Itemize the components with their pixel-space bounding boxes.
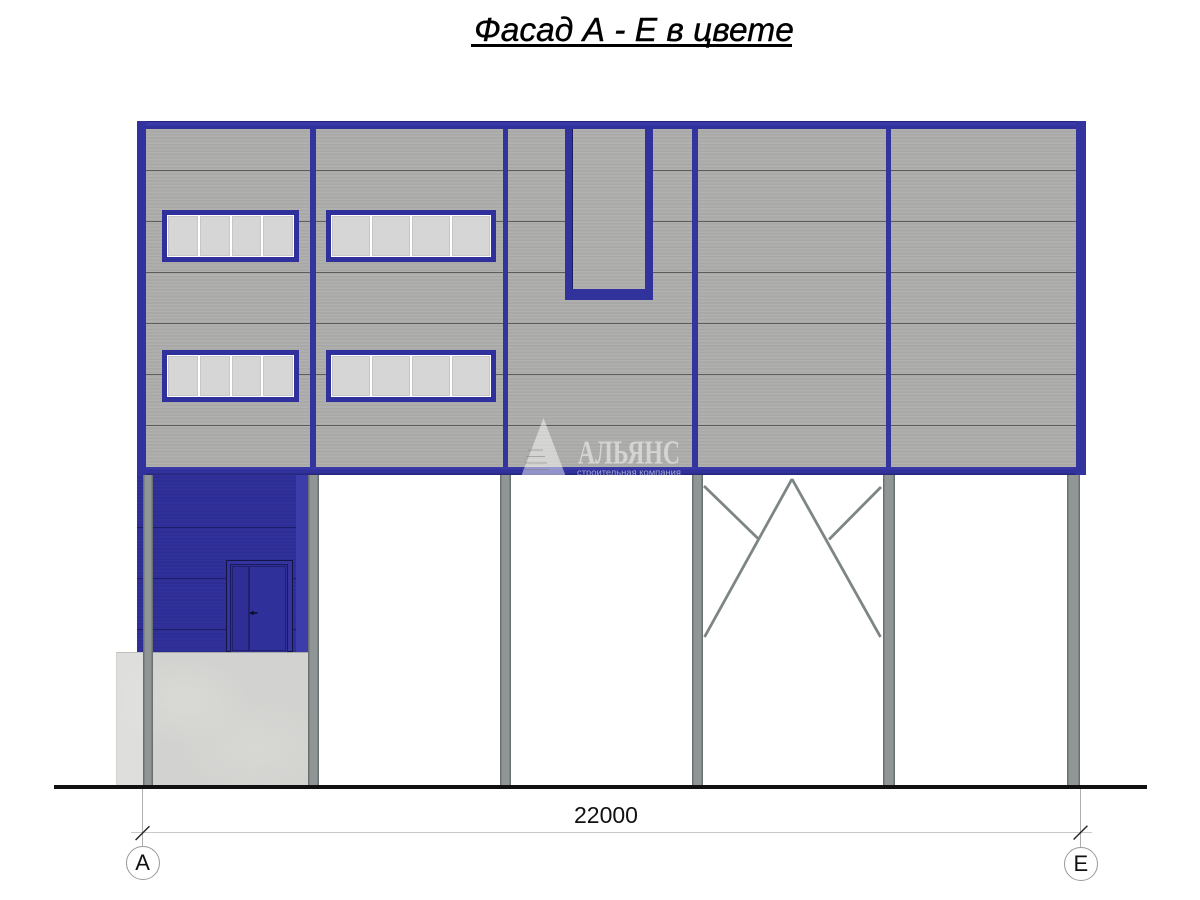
svg-text:строительная компания: строительная компания — [577, 468, 681, 479]
svg-text:АЛЬЯНС: АЛЬЯНС — [578, 435, 680, 472]
